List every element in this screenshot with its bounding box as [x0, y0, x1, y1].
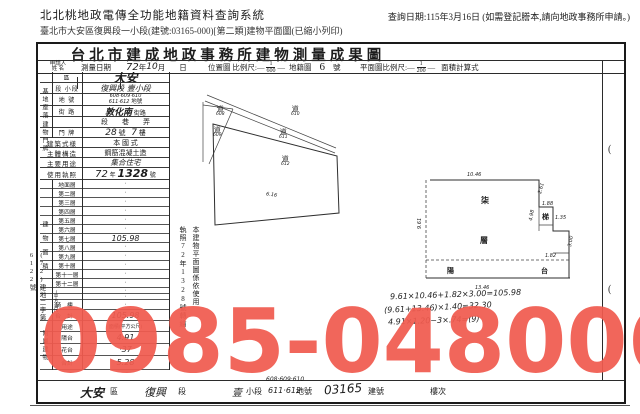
- site-lot-row: 地 號 608·609·610 611·612 地號: [40, 94, 169, 106]
- floor-area-value: ·: [82, 244, 169, 250]
- loc-den: 600: [266, 68, 275, 74]
- floor-label: 第二層: [52, 189, 82, 198]
- floor-area-value: ·: [82, 190, 169, 196]
- cadastral-map-label: 地籍圖: [289, 62, 312, 73]
- system-title: 北北桃地政電傳全功能地籍資料查詢系統: [40, 7, 265, 23]
- plan-den: 200: [417, 68, 426, 74]
- floor-label: 第十一層: [52, 270, 82, 279]
- location-scale-label: 位置圖 比例尺:: [208, 62, 257, 73]
- right-col-mark1: (: [608, 144, 611, 155]
- location-map: 6.16 道608道609道610道611道612: [202, 94, 347, 236]
- plan-dim-r5: 3.00: [567, 235, 575, 247]
- watermark-phone: 0985-048006: [40, 298, 640, 386]
- floor-plan-sketch: 10.46 13.46 9.61 2.61 1.88 4.98 1.35 3.0…: [417, 165, 592, 295]
- floor-area-value: ·: [82, 181, 169, 187]
- survey-year-unit: 年: [139, 62, 147, 73]
- floor-area-value: ·: [82, 271, 169, 277]
- lot-label: 地 號: [52, 95, 82, 104]
- plan-floor-char2: 層: [480, 236, 488, 245]
- floor-area-value: ·: [82, 253, 169, 259]
- floor-label: 第十層: [52, 261, 82, 270]
- door-number-unit: 號: [118, 129, 125, 137]
- plan-floor-char1: 柒: [480, 195, 490, 205]
- survey-month: 10: [146, 62, 157, 72]
- floor-label: 第四層: [52, 207, 82, 216]
- section-value: 復興段 壹小段: [100, 83, 151, 94]
- floor-label: 第八層: [52, 243, 82, 252]
- door-floor-unit: 樓: [139, 129, 146, 137]
- main-use-value: 集合住宅: [111, 158, 141, 168]
- street-suffix: 街路: [134, 111, 146, 117]
- floor-plan: 10.46 13.46 9.61 2.61 1.88 4.98 1.35 3.0…: [417, 165, 592, 295]
- map-parcel-label: 道610: [291, 106, 300, 118]
- divider: [52, 72, 53, 138]
- floor-rows: 地面層·第二層·第三層·第四層·第五層·第六層·第七層105.98第八層·第九層…: [40, 180, 169, 288]
- survey-day-unit: 日: [179, 62, 187, 73]
- plan-dim-r2: 1.88: [542, 201, 553, 207]
- door-number: 28: [105, 128, 116, 138]
- plan-dim-r4: 1.35: [555, 215, 566, 221]
- license-row: 使用執照 72 年 1328 號: [40, 168, 169, 180]
- plan-balcony-char2: 台: [541, 266, 548, 275]
- plan-scale-cell: 平面圖比例尺: — 1 200 — 面積計算式: [360, 61, 479, 73]
- street-value: 敦化南: [105, 106, 132, 117]
- use-row: 主要用途 集合住宅: [40, 158, 169, 168]
- lot-number: 610: [291, 113, 300, 118]
- loc-num: 1: [266, 61, 275, 68]
- lot-numbers-line2: 611·612: [109, 100, 130, 105]
- plan-num: 1: [417, 61, 426, 68]
- door-floor: 7: [131, 128, 137, 138]
- plan-dim-r1: 2.61: [537, 182, 546, 194]
- map-parcel-label: 道608: [216, 106, 225, 118]
- plan-dim-r3: 4.98: [528, 209, 536, 221]
- lane-row: 段 巷 弄: [40, 117, 169, 128]
- style-row: 建築式樣 本 國 式: [40, 138, 169, 148]
- location-scale-fraction: 1 600: [266, 61, 275, 74]
- location-scale-cell: 位置圖 比例尺: — 1 600 — 地籍圖 6 號: [208, 61, 340, 73]
- floor-area-value: ·: [82, 280, 169, 286]
- floor-label: 第六層: [52, 225, 82, 234]
- lot-number: 611: [279, 136, 288, 141]
- floor-label: 第五層: [52, 216, 82, 225]
- plan-dim-left: 9.61: [417, 218, 423, 229]
- survey-month-unit: 月: [158, 62, 166, 73]
- lot-suffix: 地號: [131, 99, 142, 105]
- floor-area-value: ·: [82, 217, 169, 223]
- license-number: 1328: [117, 168, 148, 180]
- plan-scale-fraction: 1 200: [417, 61, 426, 74]
- district-value: 大安: [113, 72, 137, 83]
- floor-label: 第七層: [52, 234, 82, 243]
- floor-label: 第九層: [52, 252, 82, 261]
- lot-number: 608: [216, 113, 225, 118]
- document-subtitle: 臺北市大安區復興段一小段(建號:03165-000)[第二類]建物平面圖(已縮小…: [40, 24, 342, 37]
- plan-scale-label: 平面圖比例尺:: [360, 62, 407, 73]
- structure-value: 鋼筋混凝土造: [82, 148, 169, 158]
- floor-area-value: ·: [82, 208, 169, 214]
- map-parcel-label: 道612: [281, 156, 290, 168]
- plan-dim-top: 10.46: [467, 172, 481, 178]
- building-style-value: 本 國 式: [82, 138, 169, 148]
- district-label: 區: [52, 73, 82, 82]
- door-label: 門 牌: [52, 128, 82, 137]
- document-page: 北北桃地政電傳全功能地籍資料查詢系統 查詢日期:115年3月16日 (如需登記謄…: [0, 0, 640, 414]
- lot-number: 612: [281, 163, 290, 168]
- page-bottom-rule: [30, 405, 630, 406]
- site-section-row: 段 小段 復興段 壹小段: [40, 83, 169, 94]
- area-calc-label: 面積計算式: [441, 62, 479, 73]
- query-date-note: 查詢日期:115年3月16日 (如需登記謄本,請向地政事務所申請。): [388, 10, 630, 23]
- license-number-unit: 號: [150, 173, 156, 179]
- street-row: 街 路 敦化南 街路: [40, 106, 169, 117]
- plan-stair-char: 梯: [542, 212, 549, 221]
- floor-area-value: ·: [82, 199, 169, 205]
- door-row: 門 牌 28 號 7 樓: [40, 128, 169, 138]
- floor-area-value: ·: [82, 226, 169, 232]
- license-year: 72: [95, 169, 108, 180]
- floor-area-value: ·: [82, 262, 169, 268]
- cadastral-map-number: 6: [319, 61, 325, 73]
- floor-label: 第三層: [52, 198, 82, 207]
- lot-number: 609: [213, 134, 222, 139]
- section-label: 段 小段: [52, 84, 82, 93]
- plan-balcony-char1: 陽: [447, 266, 454, 275]
- map-parcel-label: 道611: [279, 129, 288, 141]
- site-district-row: 區 大安: [40, 72, 169, 83]
- plan-dim-r6: 1.82: [545, 253, 556, 259]
- cadastral-map-unit: 號: [333, 62, 341, 73]
- floor-area-value: 105.98: [82, 234, 169, 243]
- survey-year: 72: [126, 62, 139, 73]
- license-year-unit: 年: [110, 173, 116, 179]
- street-label: 街 路: [52, 107, 82, 116]
- address-group-label: 建物門牌: [40, 108, 49, 166]
- lane-alley-units: 段 巷 弄: [82, 117, 169, 127]
- map-parcel-label: 道609: [213, 127, 222, 139]
- floor-label: 地面層: [52, 180, 82, 189]
- license-label: 使用執照: [40, 169, 82, 179]
- structure-row: 主體構造 鋼筋混凝土造: [40, 148, 169, 158]
